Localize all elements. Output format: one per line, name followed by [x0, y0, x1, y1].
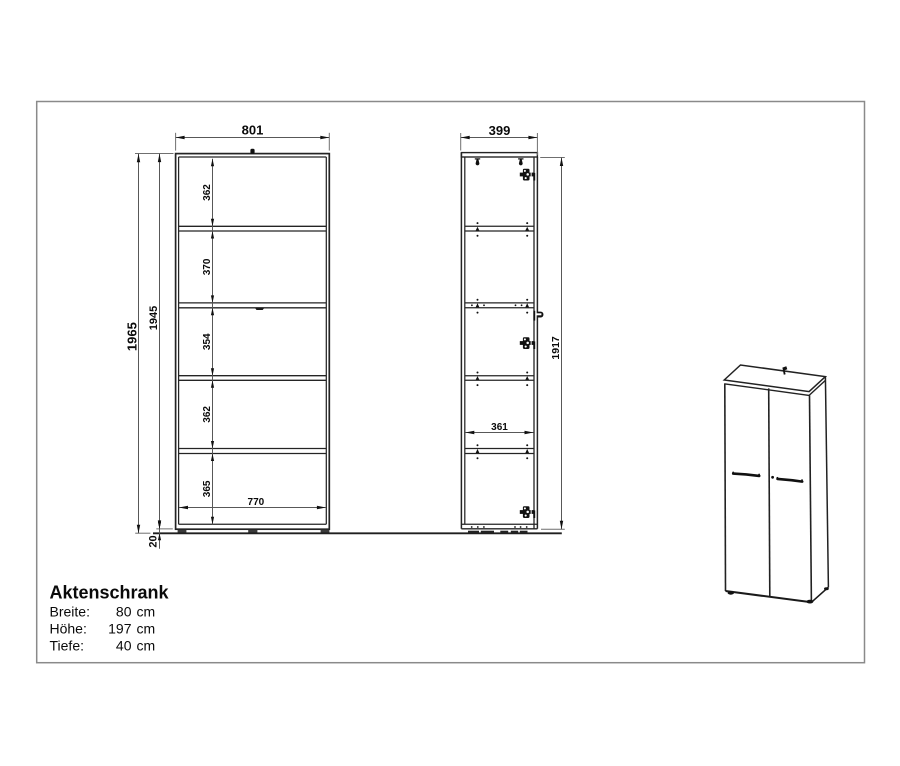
svg-text:1945: 1945 [148, 306, 160, 330]
svg-text:Tiefe:: Tiefe: [50, 637, 85, 653]
svg-text:80: 80 [116, 603, 132, 619]
svg-text:Höhe:: Höhe: [50, 620, 87, 636]
svg-text:Aktenschrank: Aktenschrank [50, 583, 170, 603]
svg-text:1965: 1965 [124, 322, 139, 351]
svg-text:362: 362 [202, 406, 213, 423]
svg-text:370: 370 [202, 258, 213, 275]
svg-text:20: 20 [148, 535, 160, 547]
svg-text:399: 399 [489, 123, 511, 138]
svg-text:365: 365 [202, 480, 213, 497]
svg-text:cm: cm [137, 637, 156, 653]
svg-text:Breite:: Breite: [50, 603, 90, 619]
svg-text:cm: cm [137, 620, 156, 636]
svg-text:40: 40 [116, 637, 132, 653]
svg-text:1917: 1917 [550, 336, 562, 360]
svg-text:cm: cm [137, 603, 156, 619]
svg-text:801: 801 [242, 123, 264, 138]
svg-text:770: 770 [248, 497, 265, 508]
svg-text:362: 362 [202, 184, 213, 201]
svg-text:354: 354 [202, 333, 213, 350]
svg-text:197: 197 [108, 620, 132, 636]
svg-text:361: 361 [491, 422, 508, 433]
